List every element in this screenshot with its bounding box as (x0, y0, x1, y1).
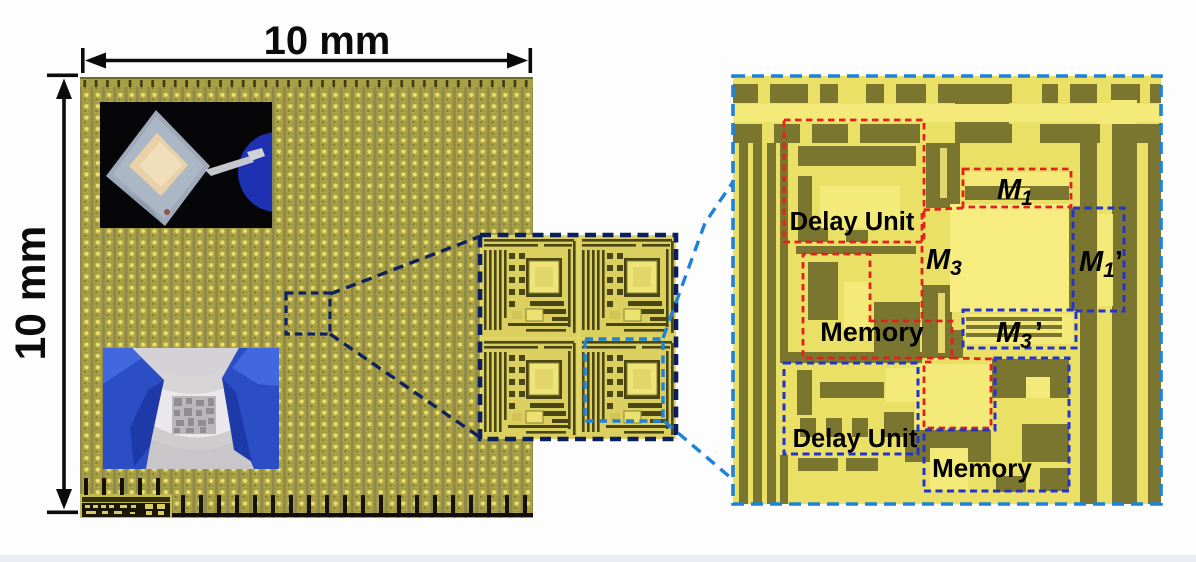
svg-text:Delay Unit: Delay Unit (790, 208, 915, 236)
svg-text:M3’: M3’ (996, 317, 1043, 353)
svg-text:10 mm: 10 mm (264, 19, 391, 63)
svg-text:Memory: Memory (932, 453, 1032, 483)
svg-text:Delay Unit: Delay Unit (793, 425, 918, 453)
svg-text:Memory: Memory (820, 317, 924, 347)
svg-text:10 mm: 10 mm (8, 226, 55, 361)
svg-text:M1’: M1’ (1079, 246, 1123, 282)
